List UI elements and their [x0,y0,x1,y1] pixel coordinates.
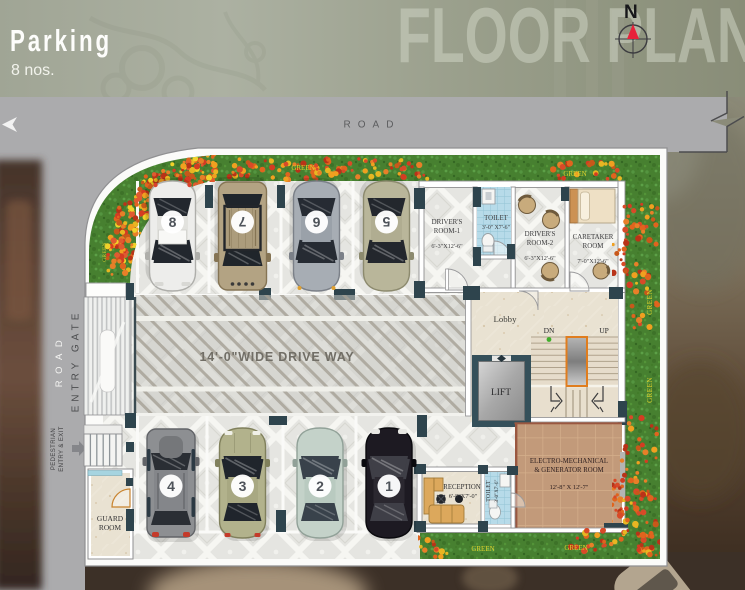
svg-text:N: N [624,2,638,23]
svg-text:GREEN: GREEN [646,377,654,403]
svg-text:3'-0"X7'-6": 3'-0"X7'-6" [495,480,500,503]
svg-text:GREEN: GREEN [646,289,654,315]
svg-text:CARETAKER: CARETAKER [573,234,614,241]
svg-text:TOILET: TOILET [484,215,509,222]
svg-text:ROOM-2: ROOM-2 [527,240,554,247]
svg-text:GREEN: GREEN [471,545,494,553]
svg-text:DRIVER'S: DRIVER'S [525,231,556,238]
svg-text:GREEN: GREEN [564,544,587,552]
svg-text:3: 3 [239,478,247,494]
svg-text:LIFT: LIFT [491,388,511,398]
svg-text:GREEN: GREEN [563,170,586,178]
svg-text:GUARD: GUARD [97,514,124,523]
svg-text:14'-0"WIDE DRIVE WAY: 14'-0"WIDE DRIVE WAY [199,350,354,364]
svg-text:ROOM-1: ROOM-1 [434,228,461,235]
svg-text:8: 8 [169,214,177,230]
svg-text:4: 4 [167,478,175,494]
svg-text:DN: DN [544,326,555,335]
svg-text:2: 2 [316,478,324,494]
svg-text:ELECTRO-MECHANICAL: ELECTRO-MECHANICAL [530,458,608,465]
svg-text:GREEN: GREEN [102,242,108,262]
svg-text:DRIVER'S: DRIVER'S [432,219,463,226]
svg-text:FLOOR PLAN: FLOOR PLAN [397,0,745,79]
svg-text:6'-3"X12'-6": 6'-3"X12'-6" [431,243,463,250]
svg-text:3'-0" X7'-6": 3'-0" X7'-6" [482,225,510,231]
svg-text:6'-8"X7'-0": 6'-8"X7'-0" [449,493,478,500]
svg-text:12'-8" X 12'-7": 12'-8" X 12'-7" [550,484,589,491]
svg-text:ROAD: ROAD [344,120,401,131]
svg-text:PEDESTRIAN: PEDESTRIAN [51,428,57,470]
svg-text:1: 1 [385,478,393,494]
svg-text:RECEPTION: RECEPTION [443,484,480,491]
svg-text:Parking: Parking [10,23,112,57]
svg-text:ENTRY & EXIT: ENTRY & EXIT [59,426,65,472]
svg-text:ENTRY GATE: ENTRY GATE [71,310,82,413]
svg-text:9: 9 [313,214,321,230]
svg-text:TOILET: TOILET [486,480,492,502]
svg-text:ROAD: ROAD [54,334,65,387]
svg-text:ROOM: ROOM [99,523,122,532]
svg-text:7: 7 [238,214,246,230]
svg-text:Lobby: Lobby [494,314,518,324]
svg-text:6'-3"X12'-6": 6'-3"X12'-6" [524,255,556,262]
svg-text:8 nos.: 8 nos. [11,62,55,79]
svg-text:ROOM: ROOM [583,243,604,250]
svg-text:5: 5 [382,214,390,230]
svg-text:& GENERATOR ROOM: & GENERATOR ROOM [534,467,603,474]
svg-text:GREEN: GREEN [291,164,314,172]
svg-text:UP: UP [599,326,609,335]
